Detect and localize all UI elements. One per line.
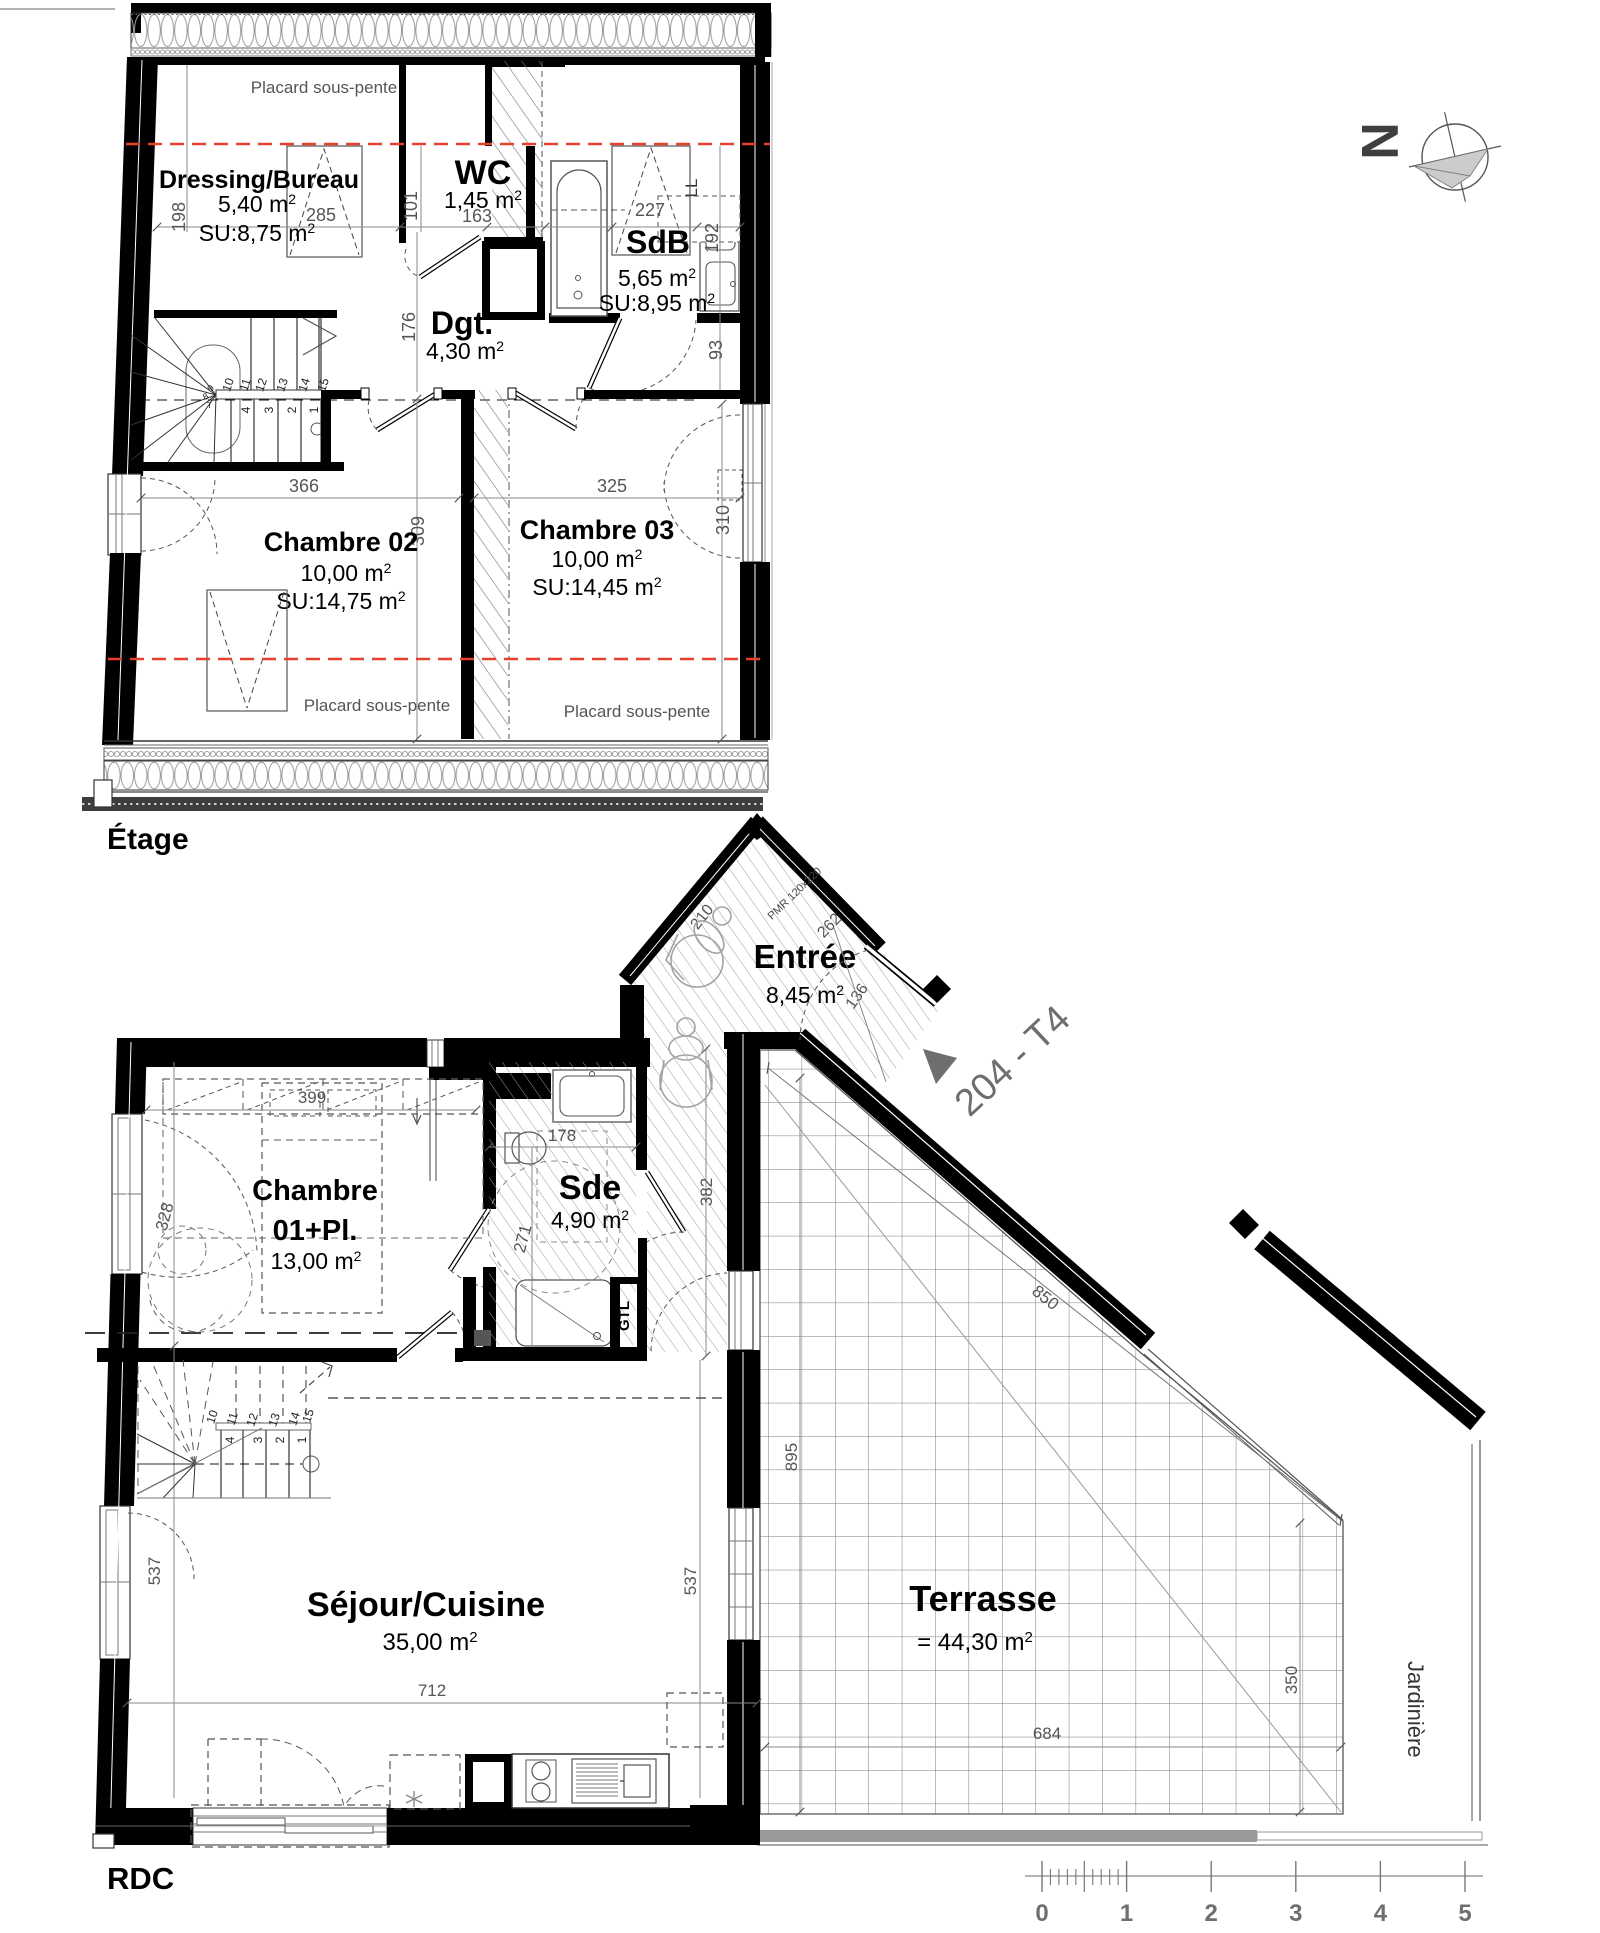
svg-text:Chambre 03: Chambre 03	[520, 515, 675, 545]
svg-text:4,30 m2: 4,30 m2	[426, 338, 504, 364]
svg-text:310: 310	[713, 505, 733, 535]
svg-text:1: 1	[1120, 1900, 1133, 1927]
svg-text:SU:14,45 m2: SU:14,45 m2	[532, 574, 661, 600]
svg-text:0: 0	[1035, 1900, 1048, 1927]
svg-text:227: 227	[635, 200, 665, 220]
svg-text:5,40 m2: 5,40 m2	[218, 191, 296, 217]
svg-text:382: 382	[697, 1178, 716, 1206]
svg-text:13,00 m2: 13,00 m2	[271, 1248, 362, 1274]
svg-text:537: 537	[681, 1567, 700, 1595]
svg-text:10,00 m2: 10,00 m2	[552, 546, 643, 572]
svg-text:2: 2	[285, 406, 299, 413]
svg-text:10,00 m2: 10,00 m2	[301, 560, 392, 586]
svg-text:192: 192	[702, 223, 722, 253]
svg-text:101: 101	[401, 191, 421, 221]
svg-text:Placard sous-pente: Placard sous-pente	[564, 702, 710, 721]
svg-text:Jardinière: Jardinière	[1403, 1661, 1428, 1758]
svg-text:5,65 m2: 5,65 m2	[618, 265, 696, 291]
svg-text:SU:8,95 m2: SU:8,95 m2	[599, 290, 716, 316]
svg-text:Séjour/Cuisine: Séjour/Cuisine	[307, 1586, 545, 1624]
svg-text:198: 198	[169, 202, 189, 232]
svg-text:Placard sous-pente: Placard sous-pente	[304, 696, 450, 715]
svg-text:895: 895	[782, 1443, 801, 1471]
svg-text:176: 176	[399, 312, 419, 342]
svg-text:Sde: Sde	[559, 1169, 621, 1207]
svg-text:Dgt.: Dgt.	[431, 305, 493, 341]
svg-text:2: 2	[1205, 1900, 1218, 1927]
svg-text:Dressing/Bureau: Dressing/Bureau	[159, 166, 359, 194]
svg-text:1: 1	[295, 1436, 309, 1443]
svg-text:712: 712	[418, 1681, 446, 1700]
svg-text:1: 1	[307, 406, 321, 413]
svg-text:350: 350	[1282, 1666, 1301, 1694]
svg-text:4,90 m2: 4,90 m2	[551, 1207, 629, 1233]
svg-text:1,45 m2: 1,45 m2	[444, 187, 522, 213]
svg-text:Chambre: Chambre	[252, 1175, 378, 1207]
svg-text:537: 537	[145, 1557, 164, 1585]
svg-text:SdB: SdB	[626, 224, 690, 260]
svg-text:01+Pl.: 01+Pl.	[273, 1215, 358, 1247]
svg-text:93: 93	[706, 340, 726, 360]
svg-text:= 44,30 m2: = 44,30 m2	[917, 1629, 1033, 1656]
svg-text:Placard sous-pente: Placard sous-pente	[251, 78, 397, 97]
svg-text:399: 399	[298, 1088, 326, 1107]
svg-text:Entrée: Entrée	[754, 938, 857, 975]
svg-text:Étage: Étage	[107, 822, 189, 856]
svg-text:4: 4	[223, 1436, 237, 1443]
svg-text:2: 2	[273, 1436, 287, 1443]
svg-text:366: 366	[289, 476, 319, 496]
svg-text:SU:14,75 m2: SU:14,75 m2	[276, 588, 405, 614]
svg-text:LL: LL	[682, 179, 701, 198]
svg-text:325: 325	[597, 476, 627, 496]
svg-text:178: 178	[548, 1126, 576, 1145]
svg-text:35,00 m2: 35,00 m2	[382, 1629, 477, 1656]
svg-text:3: 3	[1289, 1900, 1302, 1927]
svg-text:3: 3	[251, 1436, 265, 1443]
svg-text:GTL: GTL	[616, 1301, 633, 1331]
svg-text:8,45 m2: 8,45 m2	[766, 982, 844, 1008]
svg-text:684: 684	[1033, 1724, 1061, 1743]
svg-text:4: 4	[1374, 1900, 1388, 1927]
svg-text:3: 3	[262, 406, 276, 413]
svg-text:Terrasse: Terrasse	[909, 1578, 1056, 1619]
svg-text:SU:8,75 m2: SU:8,75 m2	[199, 220, 316, 246]
svg-text:Chambre 02: Chambre 02	[264, 527, 419, 557]
svg-text:5: 5	[1458, 1900, 1471, 1927]
svg-text:N: N	[1350, 122, 1408, 160]
svg-text:4: 4	[239, 406, 253, 413]
svg-text:RDC: RDC	[107, 1861, 174, 1896]
